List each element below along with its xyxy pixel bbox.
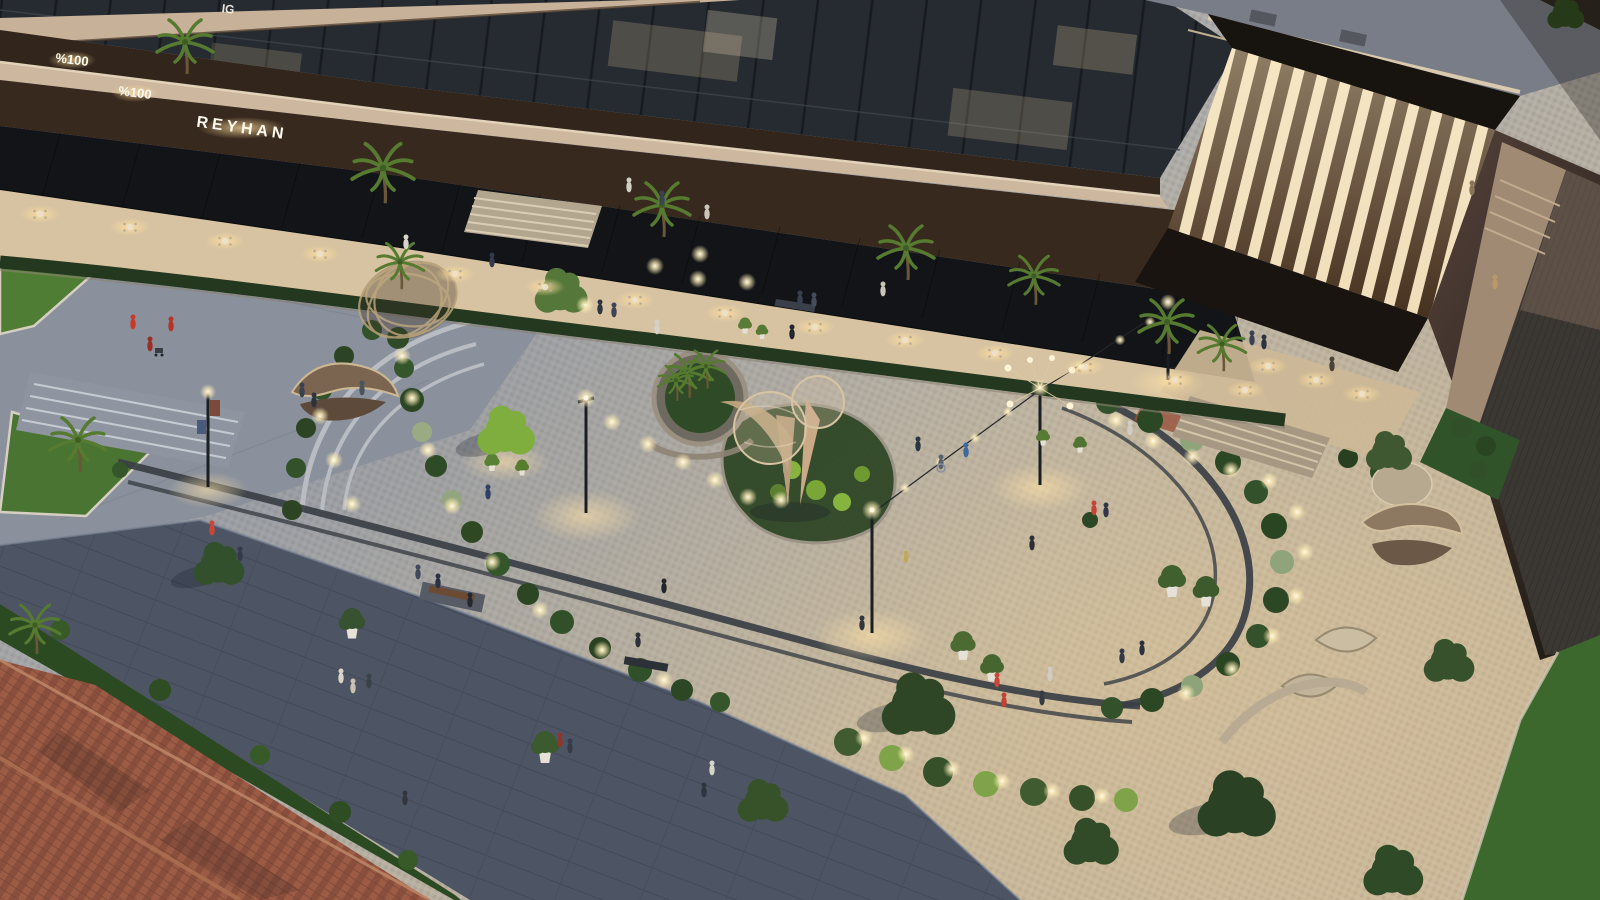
ground-light [1288,503,1306,521]
person [709,761,714,776]
person [635,633,640,648]
shrub [517,583,539,605]
ground-light [1223,660,1241,678]
person [1261,335,1266,350]
person [904,551,908,563]
shrub [806,480,826,500]
shrub [149,679,171,701]
person [1103,503,1108,518]
person [963,443,968,458]
shrub [398,850,418,870]
ground-light [1093,787,1111,805]
person [1001,693,1006,708]
dining-table [205,232,245,250]
shrub [833,493,851,511]
person [789,325,794,340]
ground-light [691,245,709,263]
ground-light [443,497,461,515]
ground-light [593,641,611,659]
shrub [250,745,270,765]
ground-light [1003,407,1014,418]
person [915,437,920,452]
person [366,674,371,689]
dining-table [1225,381,1265,399]
person [209,521,214,536]
person [701,783,706,798]
ground-light [897,745,915,763]
ground-light [1075,361,1086,372]
shrub [1082,512,1098,528]
person [994,673,999,688]
person [557,733,562,748]
person [489,253,494,268]
ground-light [403,389,421,407]
shrub [550,610,574,634]
person [811,293,816,308]
person [1492,275,1497,290]
shrub [1270,550,1294,574]
person [168,317,173,332]
person [597,300,602,315]
ground-light [1177,684,1195,702]
person [859,616,864,631]
sign-top-partial: IG [221,1,235,16]
dining-table [1248,357,1288,375]
ground-light [1287,587,1305,605]
ground-light [943,760,961,778]
dining-table [1342,385,1382,403]
ground-light [576,296,594,314]
dining-table [795,318,835,336]
ground-light [1183,448,1201,466]
person [661,579,666,594]
ground-light [855,729,873,747]
ground-light [1144,432,1162,450]
person [403,235,408,250]
ground-light [531,601,549,619]
shrub [461,521,483,543]
person [485,485,490,500]
person [1047,667,1052,682]
ground-light [483,553,501,571]
person [797,291,802,306]
dining-table [1296,371,1336,389]
shrub [1140,688,1164,712]
ground-light [1107,411,1125,429]
shrub [112,462,128,478]
person [359,381,364,396]
dining-table [300,245,340,263]
shrub [329,801,351,823]
shrub [282,500,302,520]
shrub [1263,587,1289,613]
person [350,679,355,694]
shrub [1069,785,1095,811]
person [147,337,152,352]
shrub [1114,788,1138,812]
person [611,303,616,318]
person [1039,691,1044,706]
person [1139,641,1144,656]
person [567,739,572,754]
ground-light [393,347,411,365]
person [1127,421,1132,436]
ground-light [655,671,673,689]
person [1119,649,1124,664]
ground-light [689,270,707,288]
person [1249,331,1254,346]
ground-light [311,407,329,425]
person [1329,357,1334,372]
shrub [412,422,432,442]
dining-table [525,278,565,296]
person [415,565,420,580]
dining-table [975,344,1015,362]
ground-light [970,433,981,444]
person [237,547,242,562]
shrub [1261,513,1287,539]
dining-table [20,205,60,223]
ground-light [639,435,657,453]
shrub [1452,418,1472,438]
person [654,320,659,335]
person [1091,501,1096,516]
shrub [854,466,870,482]
ground-light [772,491,790,509]
ground-light [646,257,664,275]
person [1029,536,1034,551]
shrub [1101,697,1123,719]
shrub [671,679,693,701]
dining-table [885,331,925,349]
ground-light [1296,543,1314,561]
ground-light [603,413,621,431]
person [130,315,135,330]
person [402,791,407,806]
scene-canvas: %100 %100 REYHAN IG [0,0,1600,900]
ground-light [325,451,343,469]
ground-light [1115,335,1126,346]
person [1469,181,1474,196]
person [659,191,664,206]
person [467,593,472,608]
person [338,669,343,684]
person [435,574,440,589]
aerial-plaza-rendering: %100 %100 REYHAN IG [0,0,1600,900]
ground-light [738,273,756,291]
ground-light [343,495,361,513]
shrub [1476,436,1496,456]
ground-light [739,488,757,506]
dining-table [435,265,475,283]
person [311,393,316,408]
ground-light [900,483,911,494]
dining-table [1155,371,1195,389]
person [938,455,943,470]
person [704,205,709,220]
ground-light [1222,461,1240,479]
ground-light [674,453,692,471]
ground-light [419,441,437,459]
shrub [710,692,730,712]
dining-table [705,304,745,322]
shrub [286,458,306,478]
person [880,282,885,297]
shrub [1469,461,1487,479]
ground-light [993,772,1011,790]
ground-light [1043,782,1061,800]
ground-light [1260,472,1278,490]
person [626,178,631,193]
dining-table [110,218,150,236]
dining-table [615,291,655,309]
ground-light [1263,627,1281,645]
ground-light [706,471,724,489]
person [299,383,304,398]
